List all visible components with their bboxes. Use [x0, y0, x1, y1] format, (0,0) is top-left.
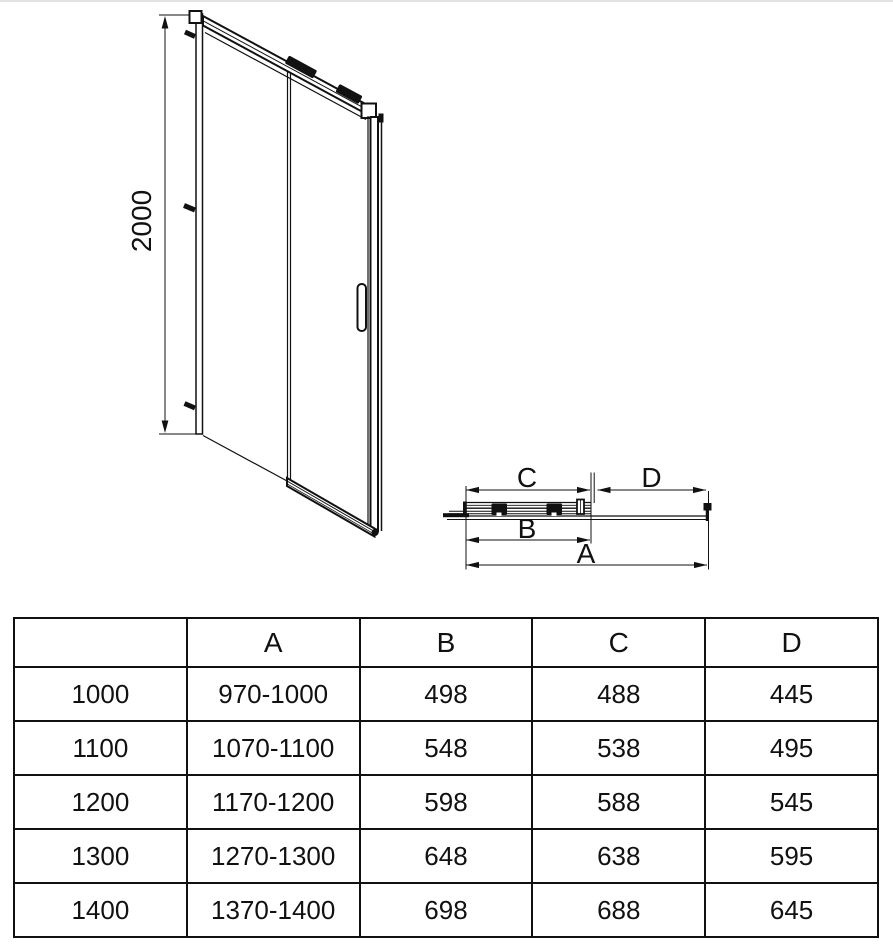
height-dimension-label: 2000 [126, 190, 157, 252]
a-cell: 1070-1100 [187, 721, 360, 775]
b-cell: 598 [360, 775, 533, 829]
table-row: 1100 1070-1100 548 538 495 [14, 721, 878, 775]
table-row: 1000 970-1000 498 488 445 [14, 667, 878, 721]
header-a: A [187, 618, 360, 667]
a-cell: 1370-1400 [187, 883, 360, 937]
header-size [14, 618, 187, 667]
height-dimension: 2000 [126, 15, 201, 434]
header-c: C [532, 618, 705, 667]
bottom-rail [287, 478, 379, 537]
size-cell: 1200 [14, 775, 187, 829]
c-cell: 588 [532, 775, 705, 829]
b-cell: 548 [360, 721, 533, 775]
technical-drawing: 2000 [0, 0, 893, 600]
size-cell: 1000 [14, 667, 187, 721]
front-view-drawing: 2000 [126, 11, 384, 537]
plan-view-drawing: C D B A [443, 462, 712, 570]
a-cell: 970-1000 [187, 667, 360, 721]
b-cell: 648 [360, 829, 533, 883]
dim-d-label: D [641, 462, 661, 493]
table-row: 1400 1370-1400 698 688 645 [14, 883, 878, 937]
d-cell: 595 [705, 829, 878, 883]
size-cell: 1300 [14, 829, 187, 883]
table-header-row: A B C D [14, 618, 878, 667]
right-wall-profile [368, 114, 384, 536]
dim-c-label: C [517, 462, 537, 493]
left-wall-profile [184, 11, 203, 434]
door-handle [358, 284, 367, 331]
d-cell: 495 [705, 721, 878, 775]
header-d: D [705, 618, 878, 667]
table-row: 1200 1170-1200 598 588 545 [14, 775, 878, 829]
a-cell: 1170-1200 [187, 775, 360, 829]
size-cell: 1400 [14, 883, 187, 937]
size-table: A B C D 1000 970-1000 498 488 445 1100 1… [13, 617, 879, 938]
table-row: 1300 1270-1300 648 638 595 [14, 829, 878, 883]
dim-b-label: B [518, 513, 537, 544]
c-cell: 688 [532, 883, 705, 937]
d-cell: 545 [705, 775, 878, 829]
a-cell: 1270-1300 [187, 829, 360, 883]
size-cell: 1100 [14, 721, 187, 775]
dim-a-label: A [577, 538, 596, 569]
d-cell: 445 [705, 667, 878, 721]
b-cell: 498 [360, 667, 533, 721]
c-cell: 538 [532, 721, 705, 775]
header-b: B [360, 618, 533, 667]
b-cell: 698 [360, 883, 533, 937]
d-cell: 645 [705, 883, 878, 937]
glass-panel-edges [203, 72, 291, 482]
top-rail [203, 16, 376, 120]
c-cell: 488 [532, 667, 705, 721]
c-cell: 638 [532, 829, 705, 883]
